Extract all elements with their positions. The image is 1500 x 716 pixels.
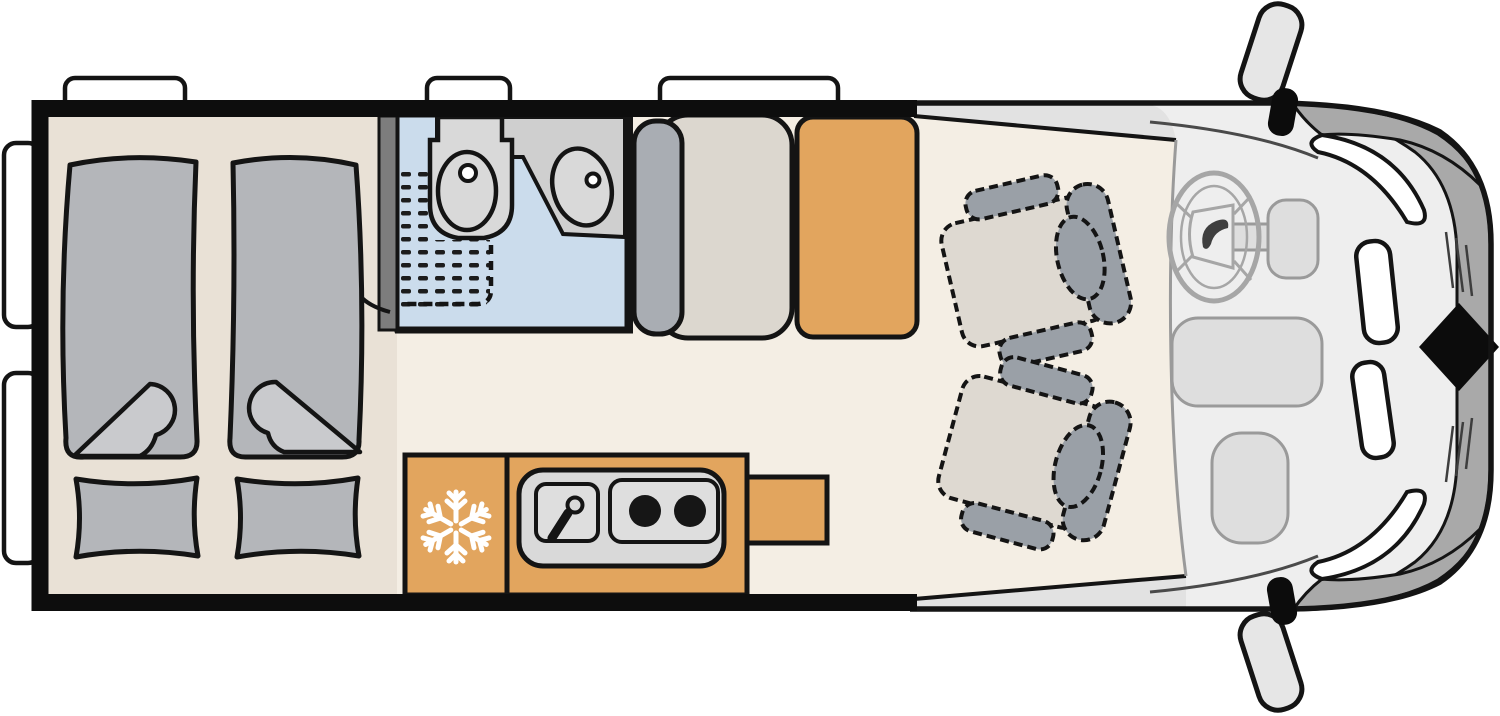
bench-seat [634,115,792,338]
bed-left [63,158,197,458]
driver-dash-pod [1268,200,1318,278]
bed-right [230,157,362,457]
stove-burner-2 [674,495,706,527]
floorplan-stage [0,0,1500,716]
stove-burner-1 [629,495,661,527]
basin-drain [460,165,476,181]
dining-table [797,117,917,337]
bench-backrest [634,121,682,334]
pillow-right [237,478,359,557]
bathroom [395,114,633,333]
pillow-left [76,478,198,557]
dashboard [1172,318,1322,406]
bedroom-partition-wall [379,116,397,330]
washbasin [430,117,512,238]
center-console [1212,433,1288,543]
refrigerator [405,455,507,595]
floorplan-svg [0,0,1500,716]
toilet-flush [587,174,600,187]
counter-extension [745,477,827,543]
